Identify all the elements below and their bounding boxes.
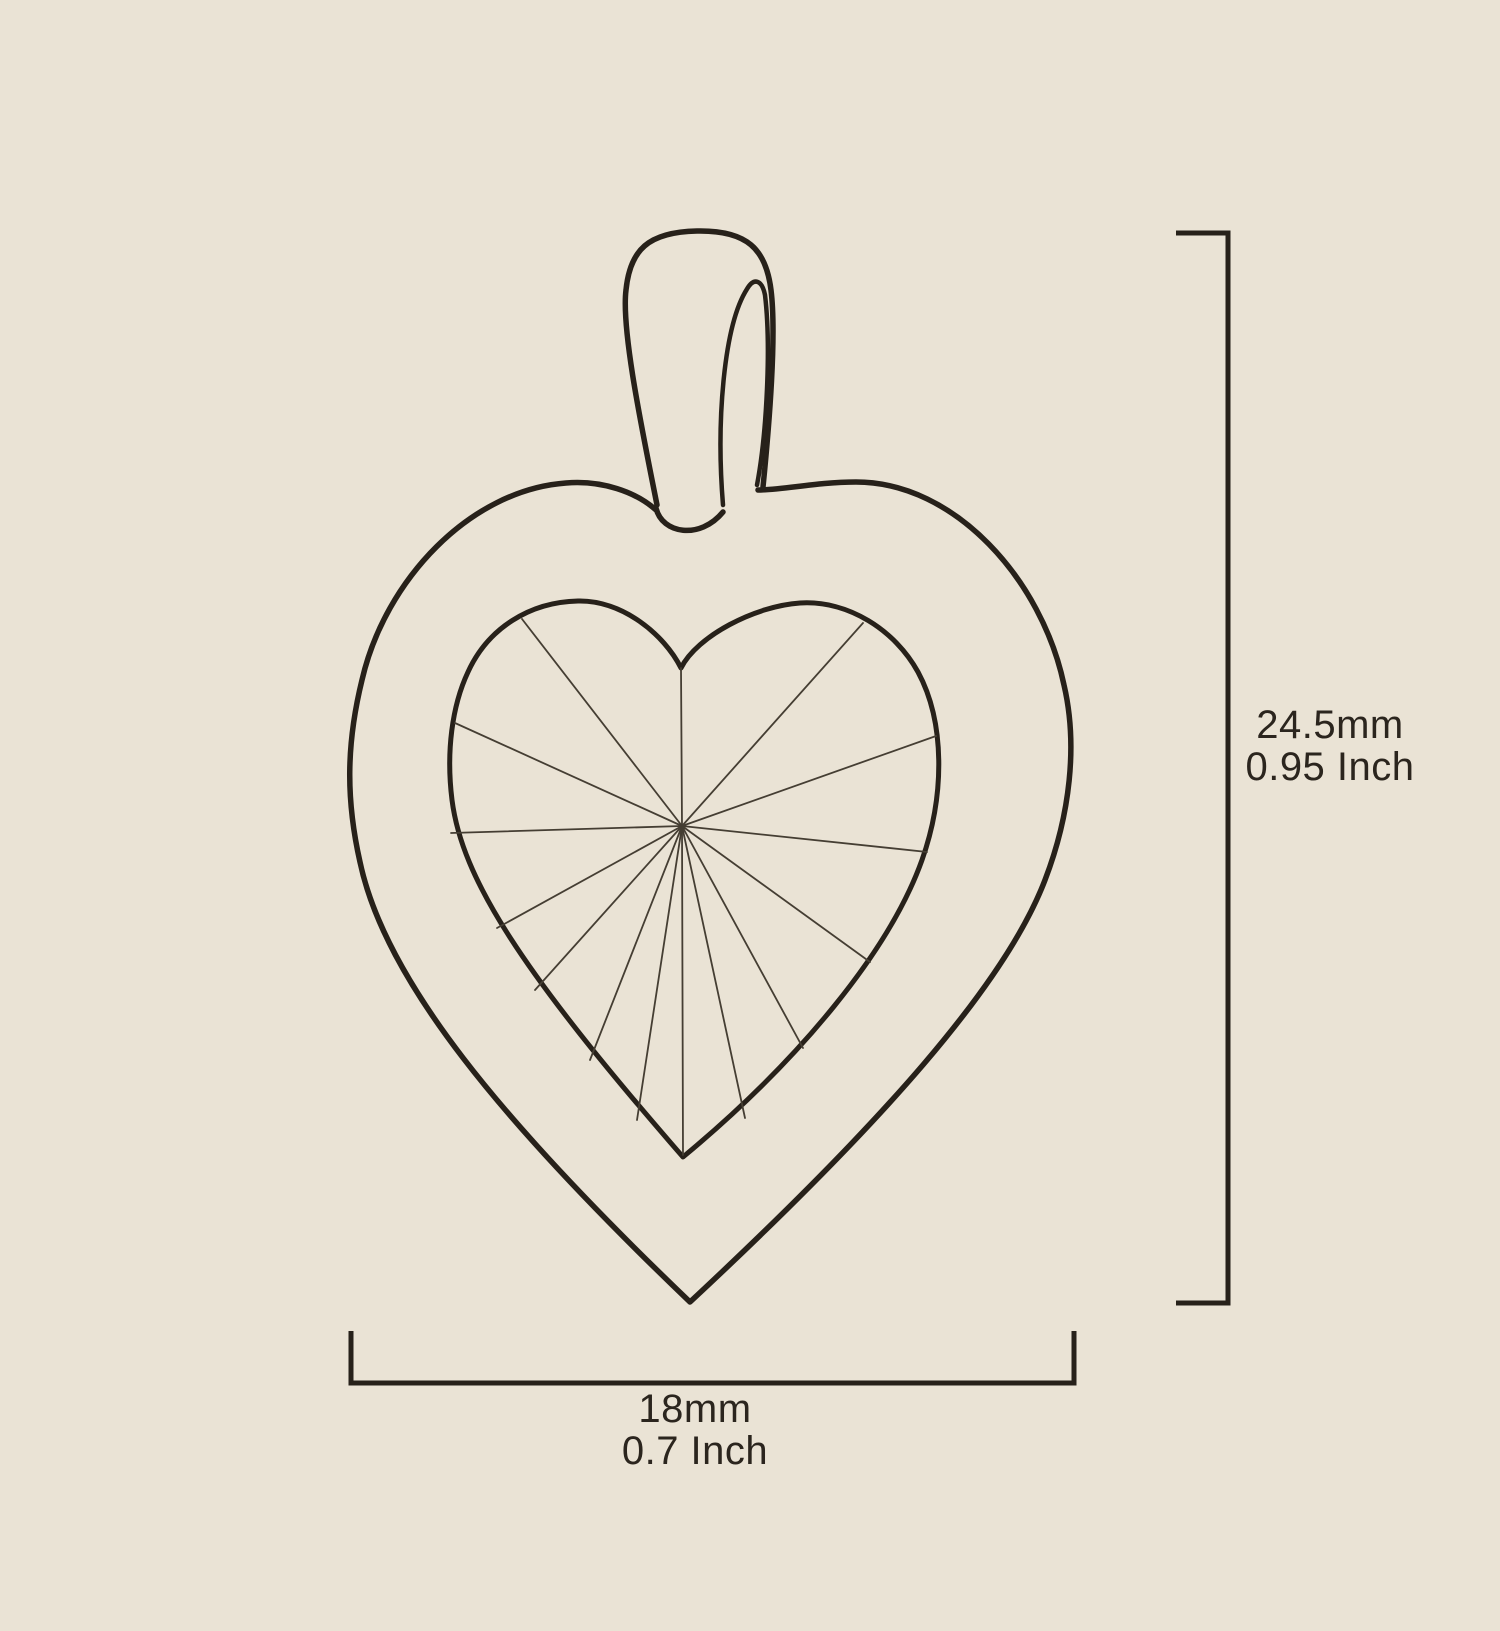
width-mm-value: 18mm: [545, 1388, 845, 1430]
width-inch-value: 0.7 Inch: [545, 1430, 845, 1472]
height-mm-value: 24.5mm: [1190, 704, 1470, 746]
width-dimension-label: 18mm 0.7 Inch: [545, 1388, 845, 1472]
pendant-bail-notch: [656, 508, 723, 530]
height-inch-value: 0.95 Inch: [1190, 746, 1470, 788]
pendant-outer-heart-outline: [350, 482, 1071, 1302]
pendant-bail-outline: [625, 231, 773, 505]
pendant-bail-inner-loop: [721, 282, 768, 505]
gemstone-facet-lines: [451, 619, 936, 1155]
diagram-canvas: 24.5mm 0.95 Inch 18mm 0.7 Inch: [0, 0, 1500, 1631]
heart-pendant-drawing: [350, 231, 1071, 1302]
height-dimension-label: 24.5mm 0.95 Inch: [1190, 704, 1470, 788]
width-dimension-bracket: [351, 1331, 1074, 1383]
